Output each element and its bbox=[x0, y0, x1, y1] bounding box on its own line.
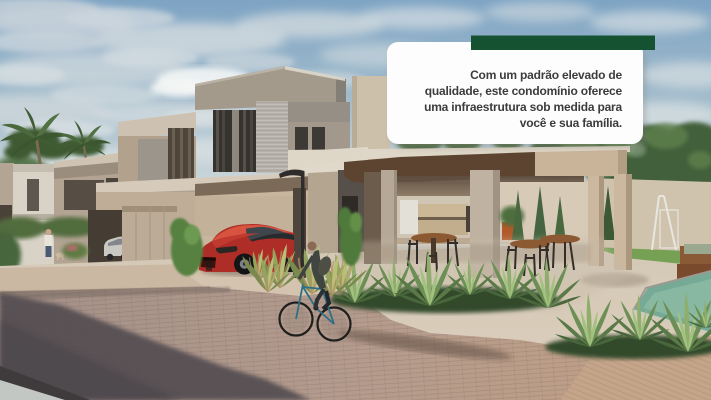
svg-text:você e sua família.: você e sua família. bbox=[520, 116, 622, 130]
svg-text:Com um padrão elevado de: Com um padrão elevado de bbox=[470, 68, 622, 82]
svg-text:uma infraestrutura sob medida: uma infraestrutura sob medida para bbox=[424, 100, 622, 114]
svg-text:qualidade, este condomínio ofe: qualidade, este condomínio oferece bbox=[425, 84, 623, 98]
